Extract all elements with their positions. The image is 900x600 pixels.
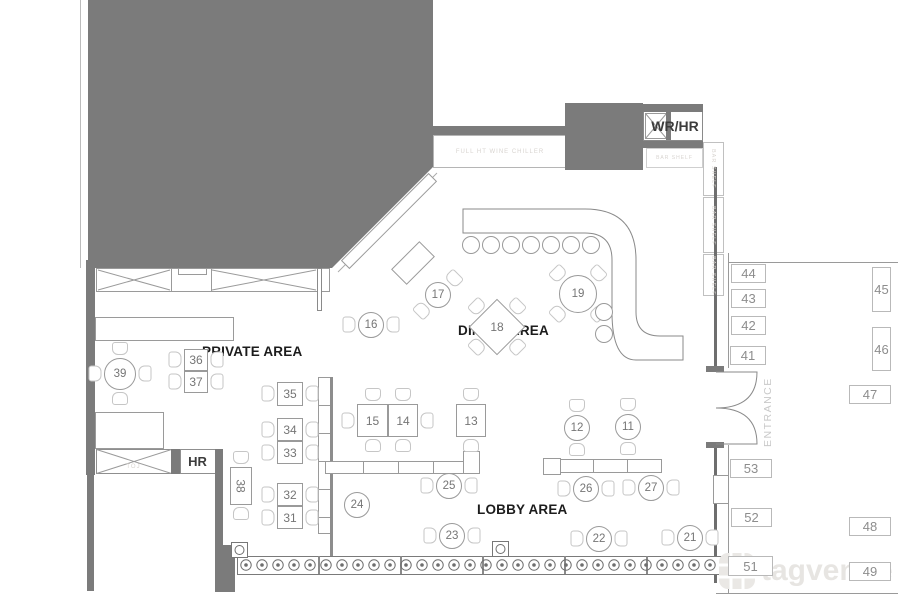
table-17: 17: [425, 282, 451, 308]
table-32: 32: [277, 483, 303, 506]
plaque-52: 52: [731, 508, 772, 527]
chair-icon: [306, 486, 319, 502]
chair-icon: [465, 478, 478, 494]
chair-icon: [262, 444, 275, 460]
plaque-42: 42: [731, 316, 766, 335]
bar-stool-icon: [595, 325, 613, 343]
chair-icon: [468, 528, 481, 544]
chair-icon: [571, 531, 584, 547]
chair-icon: [602, 481, 615, 497]
table-12: 12: [564, 415, 590, 441]
chair-icon: [620, 442, 636, 455]
table-14: 14: [388, 404, 418, 437]
table-34: 34: [277, 418, 303, 441]
bar-shelf-label: BAR SHELF: [703, 255, 723, 296]
table-26: 26: [573, 476, 599, 502]
bar-stool-icon: [542, 236, 560, 254]
chair-icon: [667, 480, 680, 496]
table-21: 21: [677, 525, 703, 551]
chair-icon: [233, 451, 249, 464]
table-13: 13: [456, 404, 486, 437]
bar-shelf-label: BAR SHELF: [646, 148, 703, 167]
table-label-18: 18: [477, 307, 517, 347]
table-37: 37: [184, 371, 208, 393]
wine-chiller-label: FULL HT WINE CHILLER: [433, 135, 567, 168]
plaque-43: 43: [731, 289, 766, 308]
chair-icon: [89, 366, 102, 382]
furniture-layer: FULL HT WINE CHILLER BAR SHELF BAR SHELF…: [0, 0, 900, 600]
bar-shelf-label: BAR SHELF: [703, 142, 723, 196]
bar-stool-icon: [595, 303, 613, 321]
chair-icon: [365, 439, 381, 452]
chair-icon: [395, 388, 411, 401]
plaque-41: 41: [730, 346, 766, 365]
bar-stool-icon: [462, 236, 480, 254]
chair-icon: [558, 481, 571, 497]
chair-icon: [615, 531, 628, 547]
chair-icon: [421, 412, 434, 428]
bar-shelf-label: BAR SHELF: [703, 198, 723, 253]
chair-icon: [262, 421, 275, 437]
plaque-44: 44: [731, 264, 766, 283]
table-23: 23: [439, 523, 465, 549]
plaque-45: 45: [872, 267, 891, 312]
bar-stool-icon: [482, 236, 500, 254]
table-36: 36: [184, 349, 208, 371]
chair-icon: [306, 444, 319, 460]
chair-icon: [306, 509, 319, 525]
chair-icon: [463, 439, 479, 452]
table-25: 25: [436, 473, 462, 499]
chair-icon: [421, 478, 434, 494]
chair-icon: [169, 352, 182, 368]
chair-icon: [262, 509, 275, 525]
table-24: 24: [344, 492, 370, 518]
table-35: 35: [277, 382, 303, 406]
chair-icon: [387, 317, 400, 333]
table-11: 11: [615, 414, 641, 440]
chair-icon: [169, 374, 182, 390]
chair-icon: [233, 507, 249, 520]
chair-icon: [139, 366, 152, 382]
chair-icon: [395, 439, 411, 452]
chair-icon: [424, 528, 437, 544]
chair-icon: [662, 530, 675, 546]
table-22: 22: [586, 526, 612, 552]
chair-icon: [112, 342, 128, 355]
table-39: 39: [104, 358, 136, 390]
chair-icon: [706, 530, 719, 546]
bar-stool-icon: [562, 236, 580, 254]
bar-stool-icon: [502, 236, 520, 254]
hr-label: HR: [180, 449, 215, 473]
chair-icon: [569, 399, 585, 412]
table-38: 38: [230, 467, 252, 505]
bar-stool-icon: [582, 236, 600, 254]
diagonal-table: [391, 241, 435, 285]
storage-label: TOJ: [96, 461, 171, 472]
entrance-label: ENTRANCE: [757, 371, 779, 447]
plaque-47: 47: [849, 385, 891, 404]
chair-icon: [211, 352, 224, 368]
chair-icon: [343, 317, 356, 333]
chair-icon: [262, 386, 275, 402]
chair-icon: [306, 421, 319, 437]
plaque-49: 49: [849, 562, 891, 581]
lobby-area-label: LOBBY AREA: [477, 502, 568, 517]
table-31: 31: [277, 506, 303, 529]
plaque-51: 51: [728, 556, 773, 576]
chair-icon: [306, 386, 319, 402]
chair-icon: [620, 398, 636, 411]
chair-icon: [342, 412, 355, 428]
table-16: 16: [358, 312, 384, 338]
chair-icon: [623, 480, 636, 496]
chair-icon: [112, 392, 128, 405]
table-33: 33: [277, 441, 303, 464]
chair-icon: [211, 374, 224, 390]
plaque-53: 53: [730, 459, 772, 478]
wrhr-label: WR/HR: [648, 112, 702, 140]
floor-plan: FULL HT WINE CHILLER BAR SHELF BAR SHELF…: [0, 0, 900, 600]
chair-icon: [262, 486, 275, 502]
table-27: 27: [638, 475, 664, 501]
table-19: 19: [559, 275, 597, 313]
chair-icon: [365, 388, 381, 401]
chair-icon: [463, 388, 479, 401]
plaque-48: 48: [849, 517, 891, 536]
bar-stool-icon: [522, 236, 540, 254]
plaque-46: 46: [872, 327, 891, 371]
table-15: 15: [357, 404, 388, 437]
chair-icon: [569, 443, 585, 456]
